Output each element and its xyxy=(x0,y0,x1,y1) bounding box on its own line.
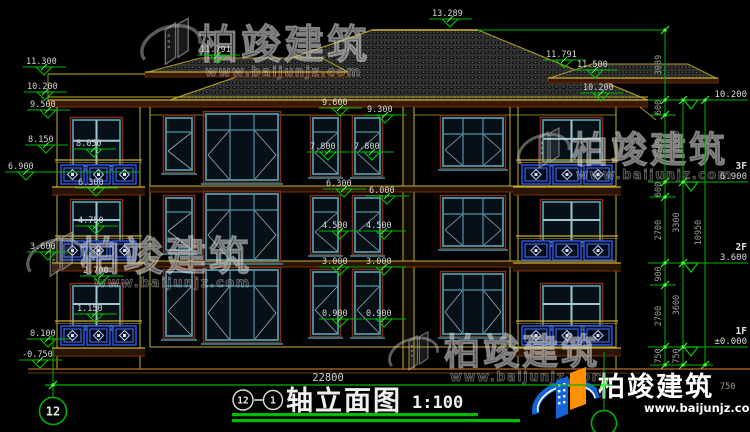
svg-text:8.050: 8.050 xyxy=(76,139,102,149)
svg-text:0.900: 0.900 xyxy=(322,309,348,319)
svg-text:3.600: 3.600 xyxy=(30,242,56,252)
elevation-marker: 13.289 xyxy=(429,9,472,27)
axis-bubble-right xyxy=(592,411,617,432)
svg-text:±0.000: ±0.000 xyxy=(714,337,747,347)
eave-fascia xyxy=(48,100,648,107)
svg-text:10.200: 10.200 xyxy=(714,90,747,100)
svg-text:6.000: 6.000 xyxy=(369,186,395,196)
svg-text:3300: 3300 xyxy=(672,131,682,151)
window xyxy=(308,270,343,340)
svg-text:3600: 3600 xyxy=(672,295,682,315)
window xyxy=(201,112,283,186)
watermark-url: www.baijunjz.com xyxy=(576,168,733,183)
total-width-dim: 22800 xyxy=(312,372,344,384)
balcony-railing xyxy=(513,236,621,271)
svg-text:9.600: 9.600 xyxy=(322,98,348,108)
dim-750-extra: 750 xyxy=(720,382,735,392)
svg-text:10.200: 10.200 xyxy=(583,83,614,93)
svg-text:10950: 10950 xyxy=(694,220,704,246)
watermark-url: www.baijunjz.com xyxy=(94,276,251,291)
elevation-marker: 8.150 xyxy=(25,135,68,153)
svg-text:6.300: 6.300 xyxy=(326,179,352,189)
svg-text:750: 750 xyxy=(672,348,682,363)
svg-text:4.750: 4.750 xyxy=(78,216,104,226)
svg-text:2.700: 2.700 xyxy=(83,266,109,276)
window xyxy=(350,270,385,340)
svg-text:0.900: 0.900 xyxy=(366,309,392,319)
svg-text:1.150: 1.150 xyxy=(77,304,103,314)
title-axis-1: 1 xyxy=(270,396,276,407)
logo-building-blue xyxy=(556,376,568,419)
svg-text:13.289: 13.289 xyxy=(432,9,463,19)
window xyxy=(161,116,197,176)
svg-text:11.791: 11.791 xyxy=(546,50,577,60)
svg-text:600: 600 xyxy=(654,182,664,197)
svg-text:6.900: 6.900 xyxy=(8,162,34,172)
window xyxy=(538,200,605,248)
right-secondary-roof xyxy=(550,64,716,78)
title-underline-2 xyxy=(232,419,520,422)
watermark-brand: 柏竣建筑 xyxy=(444,332,600,373)
svg-text:3F: 3F xyxy=(736,161,748,172)
svg-text:-0.750: -0.750 xyxy=(22,350,53,360)
logo-building-orange xyxy=(570,367,586,410)
svg-text:3089: 3089 xyxy=(654,55,664,75)
brand-url: www.baijunjz.com xyxy=(644,401,750,415)
drawing-scale: 1:100 xyxy=(412,393,463,413)
title-underline-1 xyxy=(232,413,478,416)
svg-text:750: 750 xyxy=(654,348,664,363)
svg-text:2F: 2F xyxy=(736,242,748,253)
window xyxy=(438,116,508,172)
drain-pipe xyxy=(403,107,414,370)
window xyxy=(438,272,508,340)
svg-text:11.791: 11.791 xyxy=(200,45,231,55)
title-axis-12: 12 xyxy=(237,396,248,407)
title-block: 12 1 轴立面图 1:100 xyxy=(232,385,520,422)
brand-name: 柏竣建筑 xyxy=(598,371,714,403)
svg-text:9.300: 9.300 xyxy=(367,105,393,115)
svg-text:6.300: 6.300 xyxy=(78,178,104,188)
svg-text:0.100: 0.100 xyxy=(30,329,56,339)
svg-text:8.150: 8.150 xyxy=(28,135,54,145)
svg-text:9.500: 9.500 xyxy=(30,100,56,110)
elevation-drawing: 柏竣建筑www.baijunjz.com柏竣建筑www.baijunjz.com… xyxy=(0,0,750,432)
svg-text:4.500: 4.500 xyxy=(322,221,348,231)
elevation-marker: 11.300 xyxy=(23,57,66,75)
svg-text:2700: 2700 xyxy=(654,306,664,326)
svg-text:3.600: 3.600 xyxy=(720,253,747,263)
svg-text:3.000: 3.000 xyxy=(366,257,392,267)
axis-bubble-12-label: 12 xyxy=(46,405,60,419)
svg-text:2700: 2700 xyxy=(654,220,664,240)
svg-text:1F: 1F xyxy=(736,326,748,337)
watermark-url: www.baijunjz.com xyxy=(205,65,362,80)
svg-text:600: 600 xyxy=(654,100,664,115)
svg-text:11.500: 11.500 xyxy=(577,60,608,70)
window xyxy=(438,196,508,252)
svg-text:6.900: 6.900 xyxy=(720,172,747,182)
svg-text:7.800: 7.800 xyxy=(354,142,380,152)
svg-text:7.800: 7.800 xyxy=(310,142,336,152)
svg-text:11.300: 11.300 xyxy=(26,57,57,67)
svg-text:3.000: 3.000 xyxy=(322,257,348,267)
svg-text:4.500: 4.500 xyxy=(366,221,392,231)
svg-text:900: 900 xyxy=(654,266,664,281)
svg-text:10.200: 10.200 xyxy=(27,82,58,92)
cad-viewport: 柏竣建筑www.baijunjz.com柏竣建筑www.baijunjz.com… xyxy=(0,0,750,432)
svg-text:3300: 3300 xyxy=(672,212,682,232)
svg-text:2700: 2700 xyxy=(654,138,664,158)
drawing-title: 轴立面图 xyxy=(286,385,402,417)
